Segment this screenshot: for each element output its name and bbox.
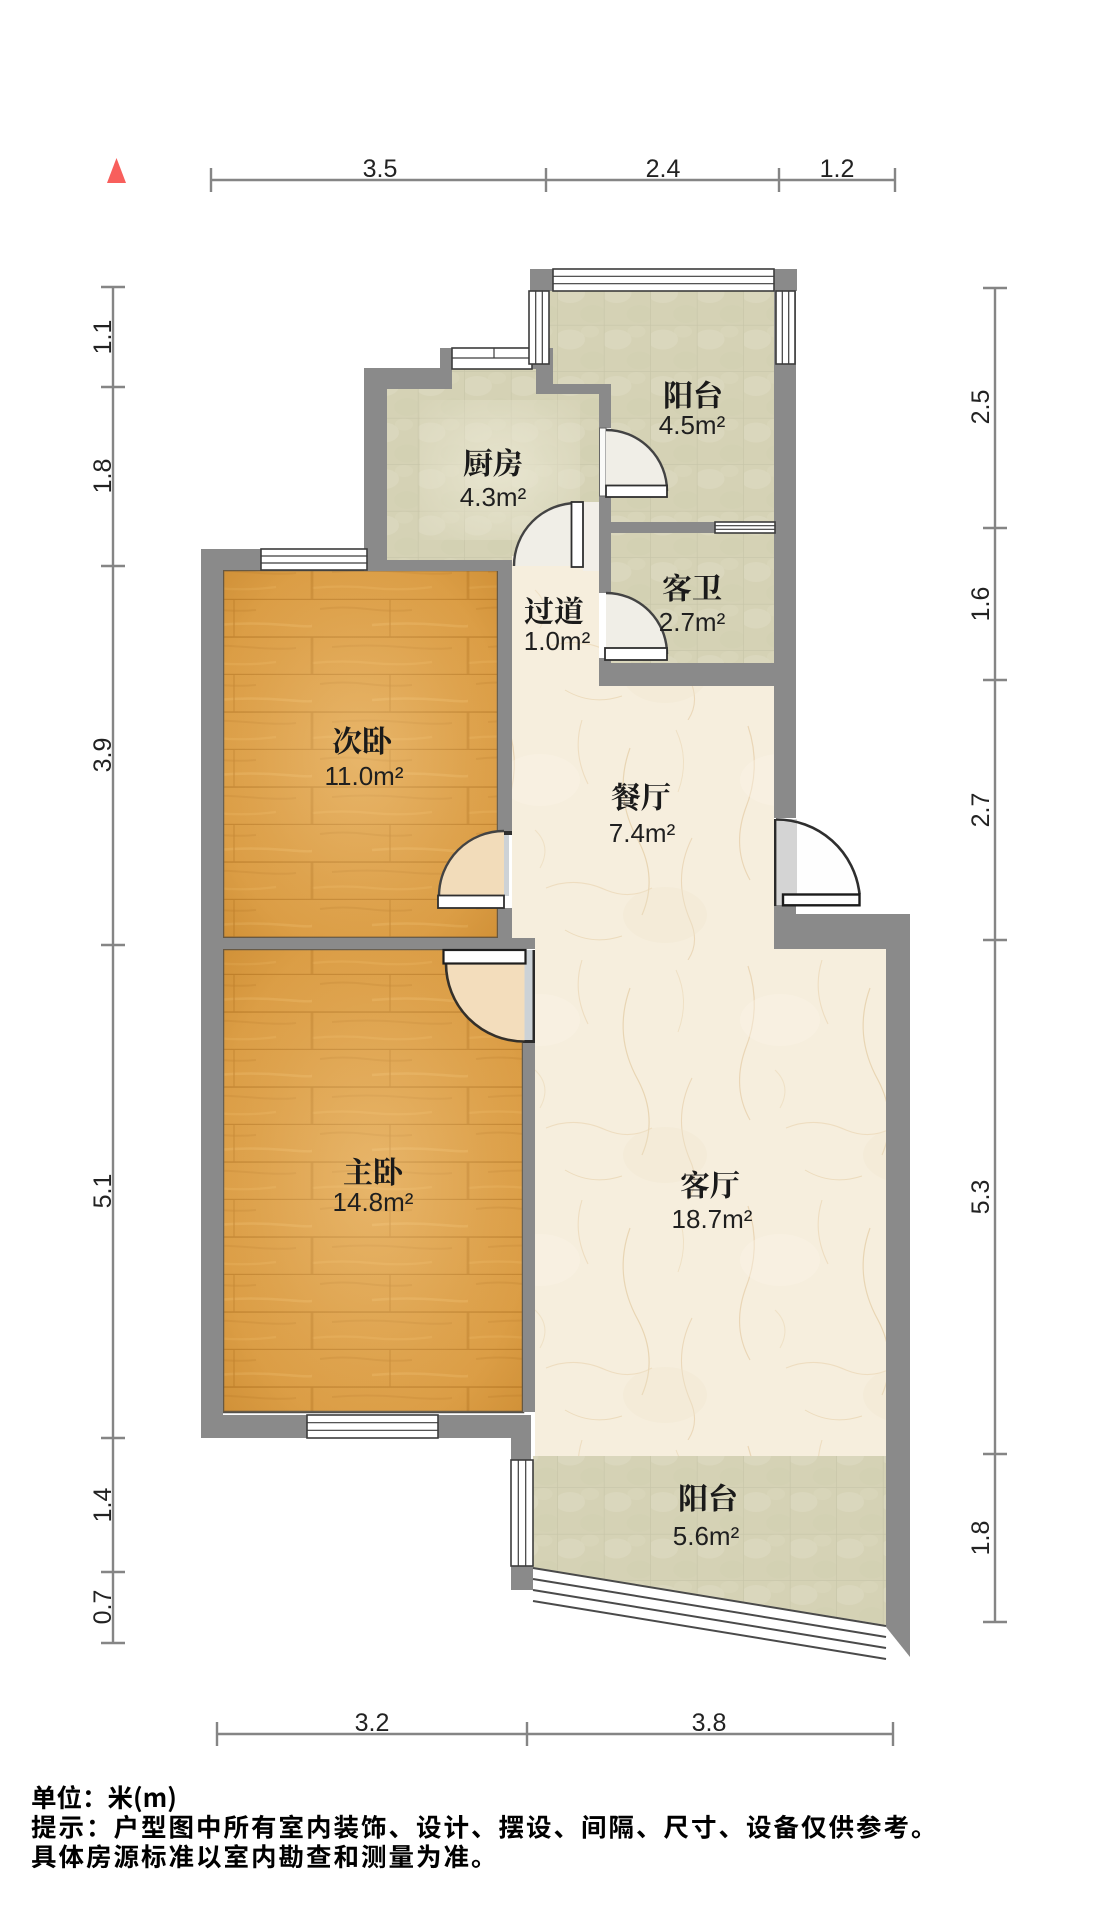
svg-text:18.7m²: 18.7m² bbox=[672, 1204, 753, 1234]
svg-text:1.0m²: 1.0m² bbox=[524, 626, 591, 656]
svg-text:7.4m²: 7.4m² bbox=[609, 818, 676, 848]
svg-text:5.1: 5.1 bbox=[89, 1174, 117, 1209]
svg-text:11.0m²: 11.0m² bbox=[325, 761, 404, 791]
svg-text:5.6m²: 5.6m² bbox=[673, 1521, 740, 1551]
svg-text:3.2: 3.2 bbox=[355, 1709, 390, 1737]
svg-text:4.5m²: 4.5m² bbox=[659, 410, 726, 440]
svg-text:1.2: 1.2 bbox=[820, 155, 855, 183]
svg-text:3.9: 3.9 bbox=[89, 738, 117, 773]
svg-text:2.4: 2.4 bbox=[646, 155, 681, 183]
svg-text:5.3: 5.3 bbox=[967, 1180, 995, 1215]
svg-text:14.8m²: 14.8m² bbox=[333, 1187, 414, 1217]
svg-text:2.7: 2.7 bbox=[967, 793, 995, 828]
svg-text:1.1: 1.1 bbox=[89, 320, 117, 355]
svg-text:1.8: 1.8 bbox=[89, 459, 117, 494]
svg-text:1.4: 1.4 bbox=[89, 1488, 117, 1523]
svg-text:2.7m²: 2.7m² bbox=[659, 607, 726, 637]
svg-text:2.5: 2.5 bbox=[967, 390, 995, 425]
svg-text:1.8: 1.8 bbox=[967, 1521, 995, 1556]
svg-text:1.6: 1.6 bbox=[967, 587, 995, 622]
svg-text:3.8: 3.8 bbox=[692, 1709, 727, 1737]
svg-text:0.7: 0.7 bbox=[89, 1590, 117, 1625]
svg-text:4.3m²: 4.3m² bbox=[460, 482, 527, 512]
svg-text:3.5: 3.5 bbox=[363, 155, 398, 183]
